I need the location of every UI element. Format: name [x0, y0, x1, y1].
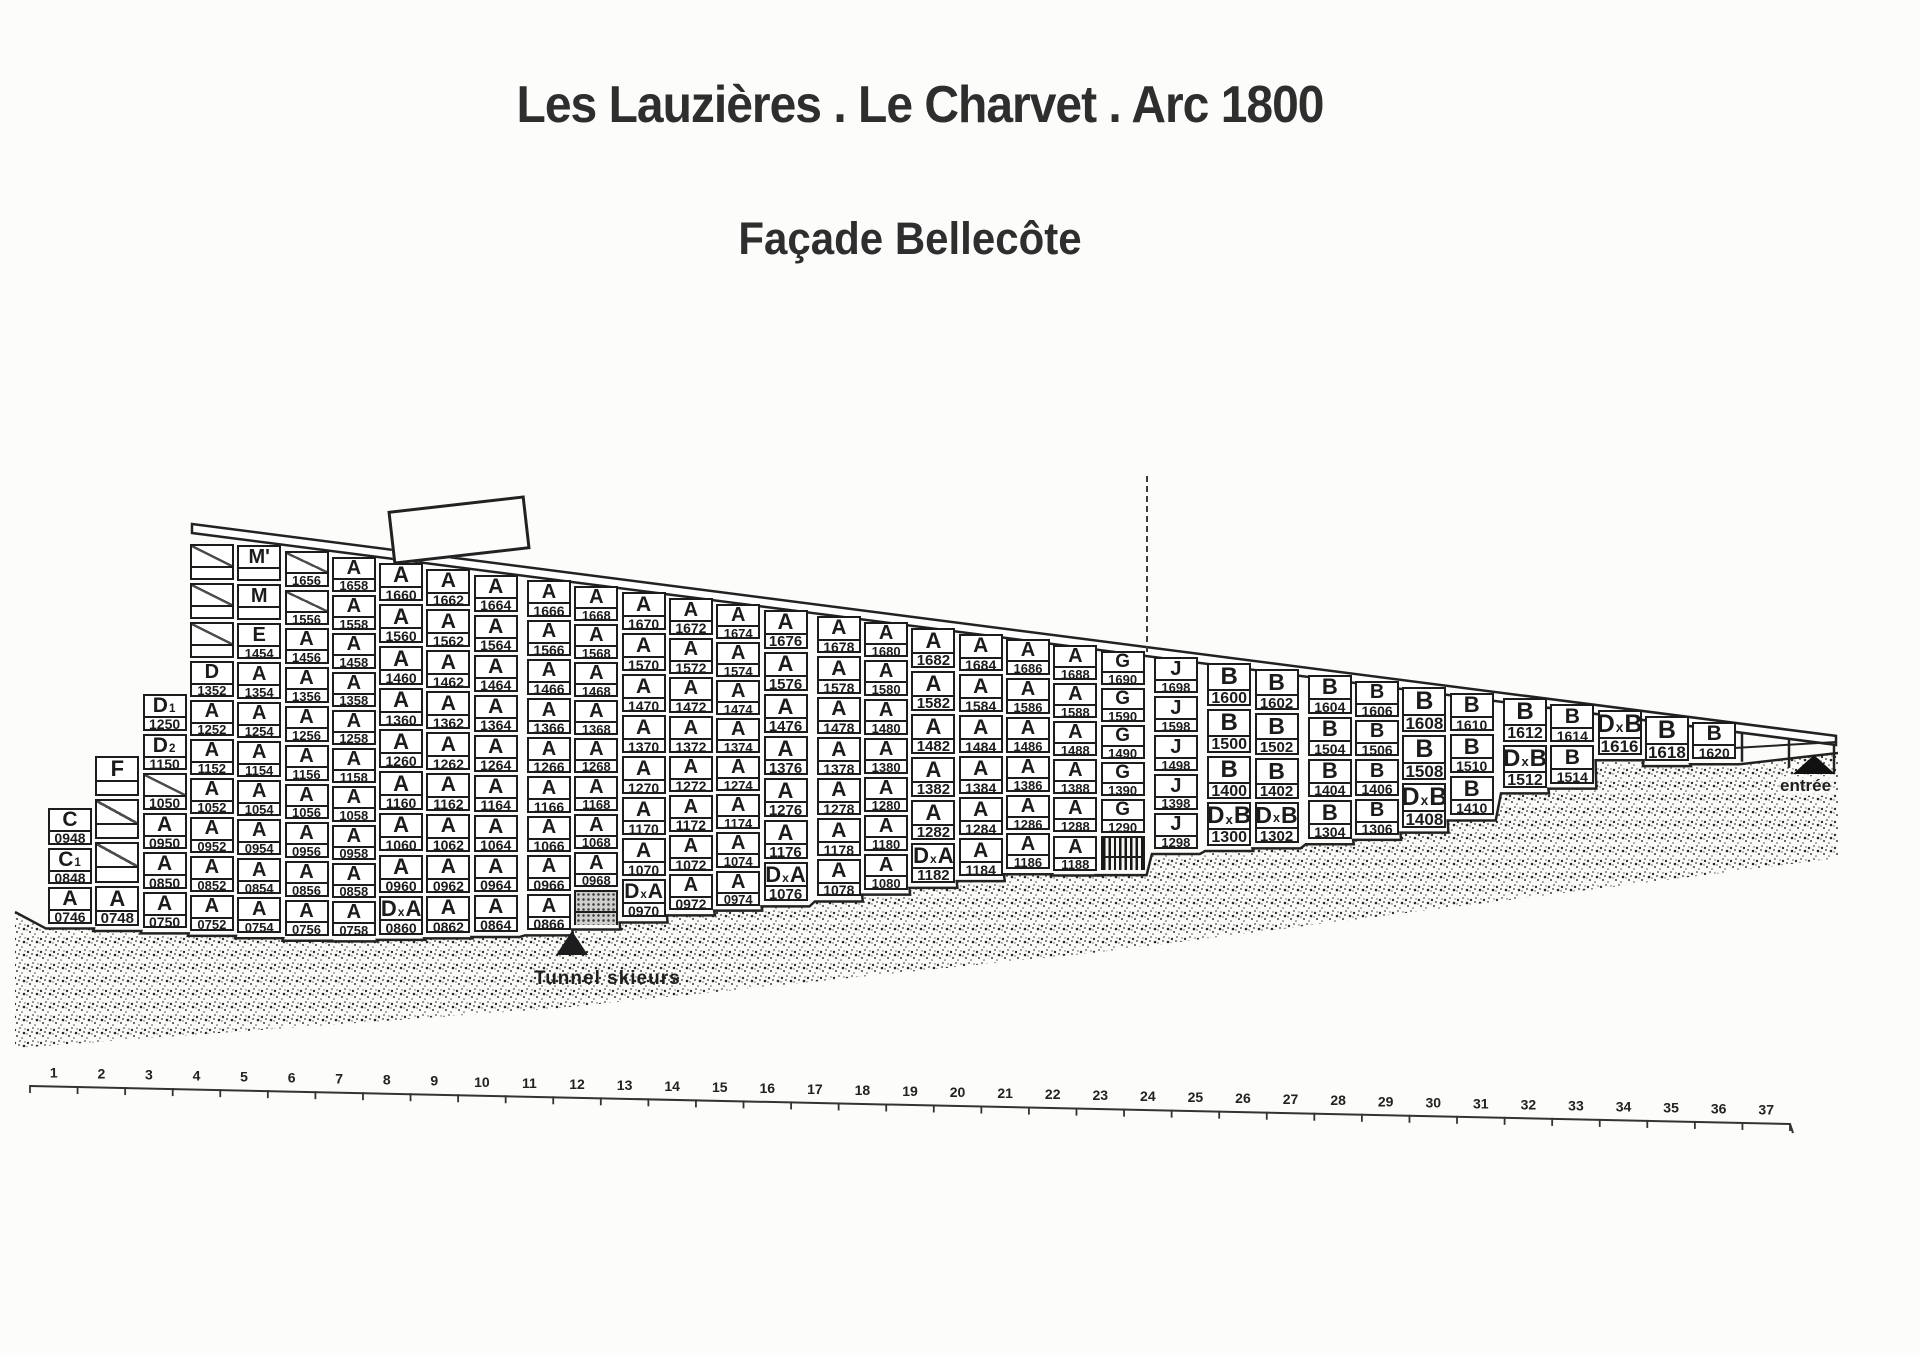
unit-type: A — [50, 889, 90, 911]
unit-number: 1598 — [1156, 720, 1196, 732]
unit-cell-1268: A1268 — [574, 738, 618, 773]
unit-cell-1184: A1184 — [959, 838, 1003, 876]
unit-number: 1272 — [671, 780, 711, 792]
unit-number: 1500 — [1209, 737, 1249, 752]
unit-cell-1500: B1500 — [1207, 709, 1251, 752]
unit-type: A — [819, 820, 859, 843]
unit-number: 1670 — [624, 617, 664, 630]
unit-cell-0962: A0962 — [426, 855, 470, 893]
unit-cell-1588: A1588 — [1053, 683, 1097, 718]
unit-number: 0948 — [50, 832, 90, 845]
unit-cell-1574: A1574 — [716, 642, 760, 677]
unit-number: 1482 — [913, 740, 953, 754]
unit-number: 1298 — [1156, 837, 1196, 849]
unit-number: 1172 — [671, 819, 711, 831]
unit-type — [287, 592, 327, 613]
unit-cell-1366: A1366 — [527, 698, 571, 734]
unit-number: 1180 — [866, 838, 906, 851]
unit-cell-1078: A1078 — [817, 859, 861, 897]
unit-type: A — [476, 617, 516, 639]
unit-type: DxA — [624, 881, 664, 904]
unit-number: 1050 — [145, 797, 185, 810]
unit-number: 1582 — [913, 697, 953, 711]
unit-cell-1474: A1474 — [716, 680, 760, 715]
blank-cell — [190, 583, 234, 619]
unit-number: 1356 — [287, 690, 327, 703]
unit-cell-1566: A1566 — [527, 620, 571, 656]
unit-cell-1288: A1288 — [1053, 797, 1097, 832]
unit-number — [192, 607, 232, 619]
unit-number: 1474 — [718, 703, 758, 715]
unit-type: B — [1505, 700, 1545, 726]
unit-cell-1174: A1174 — [716, 794, 760, 829]
unit-type: A — [145, 894, 185, 916]
unit-number: 1068 — [576, 837, 616, 849]
unit-number: 1264 — [476, 759, 516, 772]
unit-number: 0854 — [239, 882, 279, 894]
unit-type: A — [766, 612, 806, 635]
unit-cell-1164: A1164 — [474, 775, 518, 812]
unit-type: DxB — [1600, 712, 1640, 739]
unit-number: 1676 — [766, 635, 806, 649]
unit-cell-1572: A1572 — [669, 638, 713, 674]
unit-cell-1386: A1386 — [1006, 756, 1050, 792]
unit-cell-0948: C0948 — [48, 808, 92, 845]
unit-number: 0964 — [476, 879, 516, 892]
unit-cell-1488: A1488 — [1053, 721, 1097, 756]
unit-number: 1386 — [1008, 779, 1048, 792]
unit-type: A — [334, 712, 374, 733]
unit-cell-1272: A1272 — [669, 756, 713, 792]
unit-cell-0758: A0758 — [332, 901, 376, 936]
unit-number: 1672 — [671, 622, 711, 634]
unit-type — [576, 892, 616, 913]
unit-type: A — [718, 834, 758, 855]
unit-number: 1354 — [239, 686, 279, 698]
unit-type: G — [1103, 764, 1143, 784]
unit-type: G — [1103, 801, 1143, 821]
unit-number: 1402 — [1257, 785, 1297, 799]
unit-type: A — [624, 799, 664, 822]
unit-cell-0750: A0750 — [143, 892, 187, 929]
unit-type: A — [961, 840, 1001, 863]
unit-grid: C0948C10848A0746FA0748D11250D211501050A0… — [0, 0, 1920, 1355]
unit-cell-1374: A1374 — [716, 718, 760, 753]
unit-number: 1274 — [718, 779, 758, 791]
unit-cell-1352: D1352 — [190, 661, 234, 697]
unit-cell-1178: A1178 — [817, 818, 861, 856]
unit-number: 0856 — [287, 884, 327, 897]
unit-type: A — [287, 747, 327, 768]
unit-number: 1410 — [1452, 801, 1492, 815]
unit-cell-0956: A0956 — [285, 822, 329, 858]
unit-cell-1066: A1066 — [527, 816, 571, 852]
unit-type: A — [334, 750, 374, 771]
unit-number: 1620 — [1694, 746, 1734, 759]
unit-type: A — [1008, 835, 1048, 856]
unit-number: 1502 — [1257, 740, 1297, 754]
unit-type: A — [239, 860, 279, 882]
unit-cell-1568: A1568 — [574, 624, 618, 659]
unit-number: 1150 — [145, 758, 185, 771]
entree-marker-triangle — [1793, 755, 1835, 774]
unit-number: 1686 — [1008, 662, 1048, 675]
unit-type: M — [239, 586, 279, 608]
unit-cell-1298: J1298 — [1154, 813, 1198, 849]
unit-type: B — [1404, 689, 1444, 716]
unit-type: A — [671, 797, 711, 819]
unit-number: 1458 — [334, 656, 374, 668]
unit-cell-0966: A0966 — [527, 855, 571, 891]
unit-cell-0960: A0960 — [379, 855, 423, 894]
unit-number: 1466 — [529, 683, 569, 695]
unit-type: A — [1055, 723, 1095, 744]
unit-type: A — [576, 626, 616, 647]
unit-cell-1380: A1380 — [864, 738, 908, 774]
unit-number: 0754 — [239, 921, 279, 933]
unit-cell-1618: B1618 — [1645, 716, 1689, 761]
unit-cell-0854: A0854 — [237, 858, 281, 894]
unit-cell-1556: 1556 — [285, 590, 329, 626]
unit-cell-1558: A1558 — [332, 595, 376, 630]
unit-type: G — [1103, 653, 1143, 673]
unit-cell-1478: A1478 — [817, 697, 861, 735]
unit-number: 1162 — [428, 798, 468, 811]
unit-cell-1466: A1466 — [527, 659, 571, 695]
unit-number: 1358 — [334, 695, 374, 707]
unit-type: A — [287, 902, 327, 923]
unit-type: C1 — [50, 850, 90, 872]
unit-cell-1472: A1472 — [669, 677, 713, 713]
unit-cell-1252: A1252 — [190, 700, 234, 736]
unit-number: 1666 — [529, 604, 569, 616]
unit-cell-1074: A1074 — [716, 832, 760, 867]
unit-number: 1304 — [1310, 825, 1350, 839]
unit-cell-1376: A1376 — [764, 736, 808, 775]
unit-number: 1406 — [1357, 783, 1397, 795]
unit-cell-1290: G1290 — [1101, 799, 1145, 833]
unit-number: 1380 — [866, 761, 906, 774]
unit-number: 1182 — [913, 869, 953, 883]
unit-number: 0862 — [428, 921, 468, 934]
unit-type: A — [1008, 758, 1048, 779]
unit-number: 1660 — [381, 588, 421, 602]
unit-cell-1402: B1402 — [1255, 758, 1299, 799]
unit-type: A — [381, 690, 421, 713]
unit-number: 1152 — [192, 763, 232, 775]
unit-cell-1468: A1468 — [574, 662, 618, 697]
unit-type: A — [766, 780, 806, 803]
unit-type: A — [428, 898, 468, 921]
unit-number: 1164 — [476, 799, 516, 812]
unit-number: 0974 — [718, 894, 758, 906]
unit-number — [192, 646, 232, 658]
unit-number: 0960 — [381, 880, 421, 894]
unit-number: 1490 — [1103, 747, 1143, 759]
unit-type: A — [1008, 680, 1048, 701]
unit-cell-1286: A1286 — [1006, 795, 1050, 831]
unit-number: 1664 — [476, 599, 516, 612]
unit-cell-1388: A1388 — [1053, 759, 1097, 794]
unit-type — [145, 775, 185, 797]
unit-number: 1072 — [671, 859, 711, 871]
unit-number: 1080 — [866, 877, 906, 890]
unit-cell-1480: A1480 — [864, 699, 908, 735]
unit-type: A — [381, 815, 421, 838]
unit-cell-1570: A1570 — [622, 633, 666, 671]
unit-number: 1280 — [866, 800, 906, 813]
unit-number: 1574 — [718, 665, 758, 677]
unit-cell-1664: A1664 — [474, 575, 518, 612]
unit-type: A — [1008, 797, 1048, 818]
unit-cell-1264: A1264 — [474, 735, 518, 772]
unit-number: 1174 — [718, 817, 758, 829]
unit-number: 1160 — [381, 796, 421, 810]
unit-number: 1566 — [529, 644, 569, 656]
unit-cell-1584: A1584 — [959, 674, 1003, 712]
unit-number: 1658 — [334, 580, 374, 592]
unit-number: 1378 — [819, 762, 859, 775]
unit-number: 1668 — [576, 609, 616, 621]
unit-cell-1504: B1504 — [1308, 717, 1352, 756]
unit-cell-0970: DxA0970 — [622, 879, 666, 917]
unit-cell-1666: A1666 — [527, 580, 571, 616]
unit-type: A — [239, 899, 279, 921]
unit-type: A — [624, 840, 664, 863]
unit-cell-1250: D11250 — [143, 694, 187, 731]
unit-type: A — [866, 662, 906, 683]
unit-cell-1182: DxA1182 — [911, 843, 955, 883]
unit-type: A — [334, 865, 374, 886]
unit-type: A — [624, 676, 664, 699]
unit-number: 1398 — [1156, 798, 1196, 810]
unit-number: 1514 — [1552, 770, 1592, 783]
unit-cell-1166: A1166 — [527, 776, 571, 812]
unit-number: 1286 — [1008, 818, 1048, 831]
unit-number: 1556 — [287, 613, 327, 626]
unit-cell-1484: A1484 — [959, 715, 1003, 753]
unit-number: 1178 — [819, 843, 859, 856]
unit-number: 1258 — [334, 733, 374, 745]
unit-number: 0954 — [239, 843, 279, 855]
unit-number: 1284 — [961, 822, 1001, 835]
unit-type: B — [1209, 665, 1249, 691]
unit-type: A — [819, 861, 859, 884]
unit-type: A — [1055, 761, 1095, 782]
unit-number: 0972 — [671, 898, 711, 910]
unit-type: A — [718, 682, 758, 703]
unit-type: B — [1452, 695, 1492, 718]
unit-type: A — [334, 635, 374, 656]
unit-cell-1678: A1678 — [817, 616, 861, 654]
unit-cell-1662: A1662 — [426, 569, 470, 607]
unit-number: 0950 — [145, 837, 185, 850]
unit-type: A — [192, 702, 232, 724]
unit-type: A — [476, 857, 516, 879]
unit-number: 1368 — [576, 723, 616, 735]
unit-type: A — [576, 664, 616, 685]
unit-type: A — [334, 559, 374, 580]
unit-cell-1614: B1614 — [1550, 704, 1594, 742]
unit-type — [287, 553, 327, 574]
unit-type: DxB — [1209, 804, 1249, 830]
unit-type: A — [866, 701, 906, 722]
unit-type: A — [97, 888, 137, 912]
unit-type: A — [718, 796, 758, 817]
unit-type: J — [1156, 659, 1196, 681]
unit-type: A — [913, 630, 953, 654]
unit-type: A — [287, 630, 327, 651]
unit-type: A — [192, 897, 232, 919]
facade-diagram-page: Les Lauzières . Le Charvet . Arc 1800 Fa… — [0, 0, 1920, 1355]
unit-number: 1698 — [1156, 681, 1196, 693]
unit-number: 1262 — [428, 757, 468, 770]
unit-type: C — [50, 810, 90, 832]
unit-number: 1504 — [1310, 742, 1350, 756]
unit-type: A — [866, 779, 906, 800]
unit-number: 0748 — [97, 912, 137, 926]
unit-cell-1306: B1306 — [1355, 799, 1399, 835]
unit-type: A — [287, 669, 327, 690]
unit-type: A — [1055, 685, 1095, 706]
unit-cell-1358: A1358 — [332, 672, 376, 707]
unit-cell-0866: A0866 — [527, 894, 571, 930]
unit-type: A — [381, 606, 421, 629]
unit-cell-1688: A1688 — [1053, 645, 1097, 680]
unit-number: 1606 — [1357, 705, 1397, 717]
unit-cell-0958: A0958 — [332, 825, 376, 860]
unit-cell-0756: A0756 — [285, 900, 329, 936]
unit-number: 1618 — [1647, 745, 1687, 761]
unit-type: A — [529, 700, 569, 722]
unit-number: 1176 — [766, 845, 806, 859]
unit-number: 1464 — [476, 679, 516, 692]
unit-cell-1390: G1390 — [1101, 762, 1145, 796]
unit-number: 1472 — [671, 701, 711, 713]
unit-cell-1464: A1464 — [474, 655, 518, 692]
unit-cell-1684: A1684 — [959, 634, 1003, 672]
unit-cell-1658: A1658 — [332, 557, 376, 592]
entree-label: entrée — [1778, 776, 1833, 796]
unit-cell-1302: DxB1302 — [1255, 802, 1299, 843]
unit-type: A — [671, 718, 711, 740]
unit-type: B — [1310, 677, 1350, 700]
unit-cell-1560: A1560 — [379, 604, 423, 643]
unit-cell-1462: A1462 — [426, 650, 470, 688]
unit-type: A — [671, 679, 711, 701]
unit-cell-1054: A1054 — [237, 780, 281, 816]
unit-type: A — [334, 597, 374, 618]
unit-cell-1056: A1056 — [285, 784, 329, 820]
unit-number: 1678 — [819, 641, 859, 654]
unit-cell-1482: A1482 — [911, 714, 955, 754]
unit-type: A — [192, 741, 232, 763]
unit-type: A — [718, 873, 758, 894]
unit-number: 0746 — [50, 911, 90, 924]
unit-type: B — [1257, 760, 1297, 785]
unit-type — [192, 585, 232, 607]
unit-cell-1278: A1278 — [817, 778, 861, 816]
unit-type: A — [819, 699, 859, 722]
unit-number: 1360 — [381, 713, 421, 727]
unit-cell-1502: B1502 — [1255, 713, 1299, 754]
unit-number: 1400 — [1209, 784, 1249, 799]
unit-type: A — [334, 788, 374, 809]
unit-type: B — [1694, 724, 1734, 746]
unit-number: 1290 — [1103, 821, 1143, 833]
unit-type: A — [192, 858, 232, 880]
unit-number: 1158 — [334, 771, 374, 783]
unit-type: B — [1552, 747, 1592, 770]
unit-type: A — [287, 786, 327, 807]
unit-number: 1476 — [766, 719, 806, 733]
unit-type: DxA — [766, 864, 806, 887]
unit-type: A — [866, 624, 906, 645]
unit-type: A — [145, 815, 185, 837]
unit-cell-1062: A1062 — [426, 814, 470, 852]
unit-number: 1478 — [819, 722, 859, 735]
unit-number: 1674 — [718, 627, 758, 639]
unit-number: 1604 — [1310, 700, 1350, 714]
unit-number: 1656 — [287, 574, 327, 587]
unit-cell-0964: A0964 — [474, 855, 518, 892]
unit-number: 1564 — [476, 639, 516, 652]
unit-number: 0952 — [192, 841, 232, 853]
unit-cell-0952: A0952 — [190, 817, 234, 853]
unit-type: F — [97, 758, 137, 782]
unit-number: 1390 — [1103, 784, 1143, 796]
unit-cell-1406: B1406 — [1355, 759, 1399, 795]
unit-number: 1572 — [671, 662, 711, 674]
unit-type: A — [476, 577, 516, 599]
unit-type: A — [476, 777, 516, 799]
unit-number: 1462 — [428, 675, 468, 688]
unit-type: A — [624, 594, 664, 617]
unit-type: A — [334, 674, 374, 695]
tunnel-label: Tunnel skieurs — [534, 968, 681, 990]
unit-number: 1384 — [961, 781, 1001, 794]
unit-type: A — [239, 743, 279, 765]
unit-type: A — [718, 644, 758, 665]
unit-cell-1454: E1454 — [237, 623, 281, 659]
unit-number: 1562 — [428, 634, 468, 647]
unit-type: A — [576, 740, 616, 761]
unit-number: 0864 — [476, 919, 516, 932]
unit-type: A — [529, 778, 569, 800]
unit-number: 1270 — [624, 781, 664, 794]
unit-type: B — [1357, 801, 1397, 823]
unit-number — [239, 608, 279, 620]
unit-number: 1366 — [529, 722, 569, 734]
unit-number: 1468 — [576, 685, 616, 697]
unit-type: A — [381, 773, 421, 796]
unit-number: 1408 — [1404, 812, 1444, 828]
unit-number: 1362 — [428, 716, 468, 729]
unit-cell-1686: A1686 — [1006, 639, 1050, 675]
unit-number: 0966 — [529, 879, 569, 891]
unit-number: 1060 — [381, 838, 421, 852]
unit-cell-1254: A1254 — [237, 702, 281, 738]
unit-type: B — [1310, 719, 1350, 742]
unit-cell-1400: B1400 — [1207, 756, 1251, 799]
unit-cell-1384: A1384 — [959, 756, 1003, 794]
unit-type: B — [1257, 671, 1297, 696]
unit-type: A — [287, 863, 327, 884]
unit-number: 1300 — [1209, 830, 1249, 845]
blank-cell — [574, 890, 618, 925]
unit-cell-1052: A1052 — [190, 778, 234, 814]
unit-type: DxB — [1257, 804, 1297, 829]
